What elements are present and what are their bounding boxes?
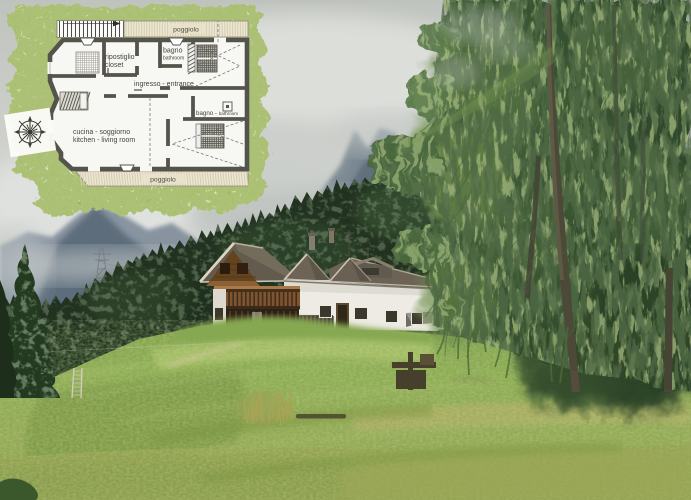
svg-text:bagno: bagno [163, 48, 183, 55]
svg-text:bagno - bathroom: bagno - bathroom [196, 110, 238, 117]
svg-text:cucina - soggiorno: cucina - soggiorno [73, 129, 130, 136]
svg-text:bathroom: bathroom [163, 56, 184, 62]
svg-text:closet: closet [105, 62, 123, 69]
svg-text:ripostiglio: ripostiglio [105, 54, 135, 61]
svg-text:ingresso - entrance: ingresso - entrance [134, 81, 194, 88]
svg-text:poggiolo: poggiolo [173, 27, 199, 34]
svg-text:poggiolo: poggiolo [150, 177, 176, 184]
svg-text:kitchen - living room: kitchen - living room [73, 137, 135, 144]
